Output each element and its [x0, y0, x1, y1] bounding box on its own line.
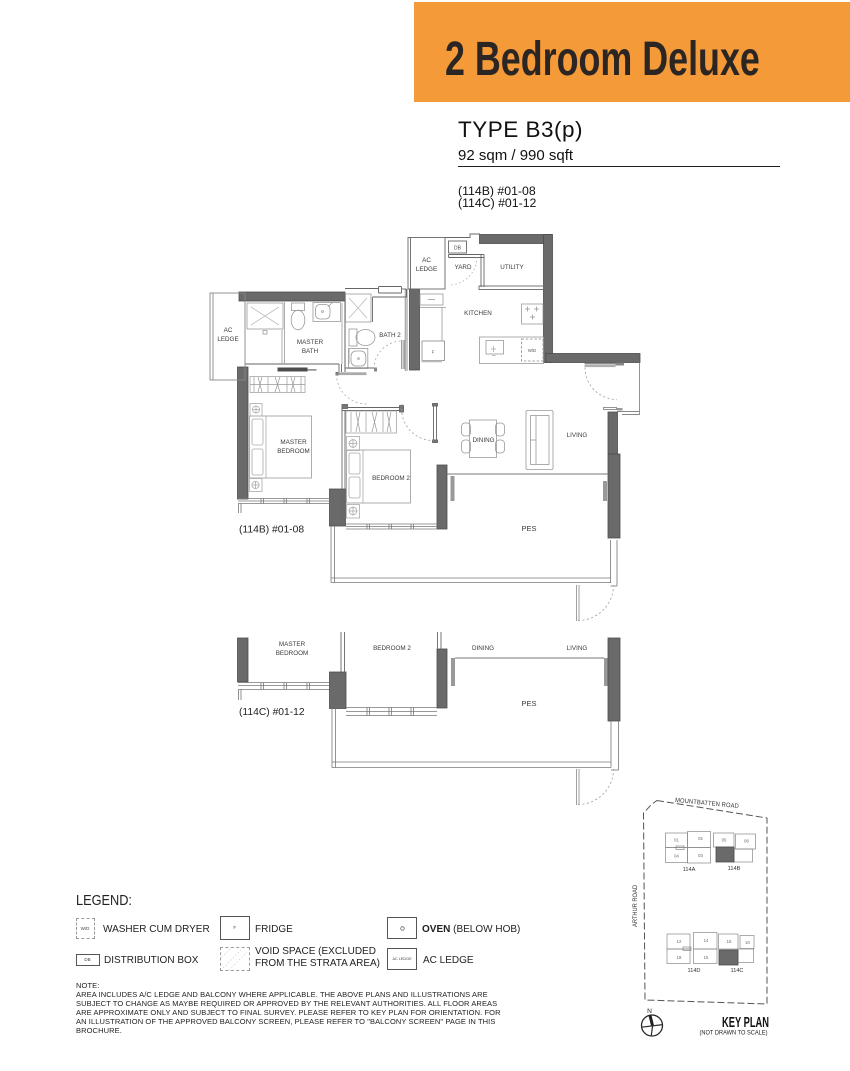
svg-text:BEDROOM: BEDROOM: [277, 448, 310, 455]
svg-text:PES: PES: [521, 524, 536, 533]
svg-text:KITCHEN: KITCHEN: [464, 310, 492, 317]
svg-text:01: 01: [674, 838, 679, 843]
svg-text:05: 05: [722, 838, 727, 843]
svg-text:UTILITY: UTILITY: [500, 264, 524, 271]
svg-text:DB: DB: [454, 246, 462, 252]
svg-text:MASTER: MASTER: [297, 339, 324, 346]
svg-text:114A: 114A: [683, 867, 696, 873]
svg-text:BATH: BATH: [302, 348, 319, 355]
svg-text:W/D: W/D: [528, 348, 536, 353]
svg-text:DINING: DINING: [472, 645, 494, 652]
svg-text:BEDROOM 2: BEDROOM 2: [372, 475, 410, 482]
svg-text:MASTER: MASTER: [280, 439, 307, 446]
svg-text:114C: 114C: [731, 968, 744, 974]
svg-text:(114C) #01-12: (114C) #01-12: [239, 707, 305, 718]
svg-text:BEDROOM: BEDROOM: [276, 650, 309, 657]
svg-text:DINING: DINING: [472, 437, 494, 444]
svg-text:PES: PES: [521, 699, 536, 708]
svg-text:AC: AC: [422, 257, 431, 264]
svg-text:04: 04: [674, 854, 679, 859]
svg-text:12: 12: [677, 939, 682, 944]
svg-text:14: 14: [704, 938, 709, 943]
svg-text:16: 16: [727, 939, 732, 944]
svg-text:LEDGE: LEDGE: [217, 336, 238, 343]
svg-text:AC: AC: [224, 327, 233, 334]
svg-text:06: 06: [744, 839, 749, 844]
svg-text:LEDGE: LEDGE: [416, 266, 437, 273]
svg-text:114B: 114B: [728, 866, 741, 872]
svg-text:YARD: YARD: [454, 264, 471, 271]
svg-text:BATH 2: BATH 2: [379, 332, 401, 339]
svg-text:18: 18: [677, 955, 682, 960]
svg-text:03: 03: [698, 853, 703, 858]
svg-text:114D: 114D: [688, 968, 701, 974]
svg-text:MASTER: MASTER: [279, 641, 306, 648]
svg-text:LIVING: LIVING: [567, 432, 588, 439]
svg-text:N: N: [647, 1008, 652, 1015]
svg-text:10: 10: [745, 940, 750, 945]
svg-text:(114B) #01-08: (114B) #01-08: [239, 525, 304, 536]
svg-text:BEDROOM 2: BEDROOM 2: [373, 645, 411, 652]
svg-text:02: 02: [698, 836, 703, 841]
svg-text:15: 15: [704, 955, 709, 960]
svg-text:LIVING: LIVING: [567, 645, 588, 652]
svg-text:(NOT DRAWN TO SCALE): (NOT DRAWN TO SCALE): [700, 1030, 768, 1037]
svg-text:F: F: [432, 350, 435, 355]
svg-text:ARTHUR ROAD: ARTHUR ROAD: [632, 885, 639, 927]
